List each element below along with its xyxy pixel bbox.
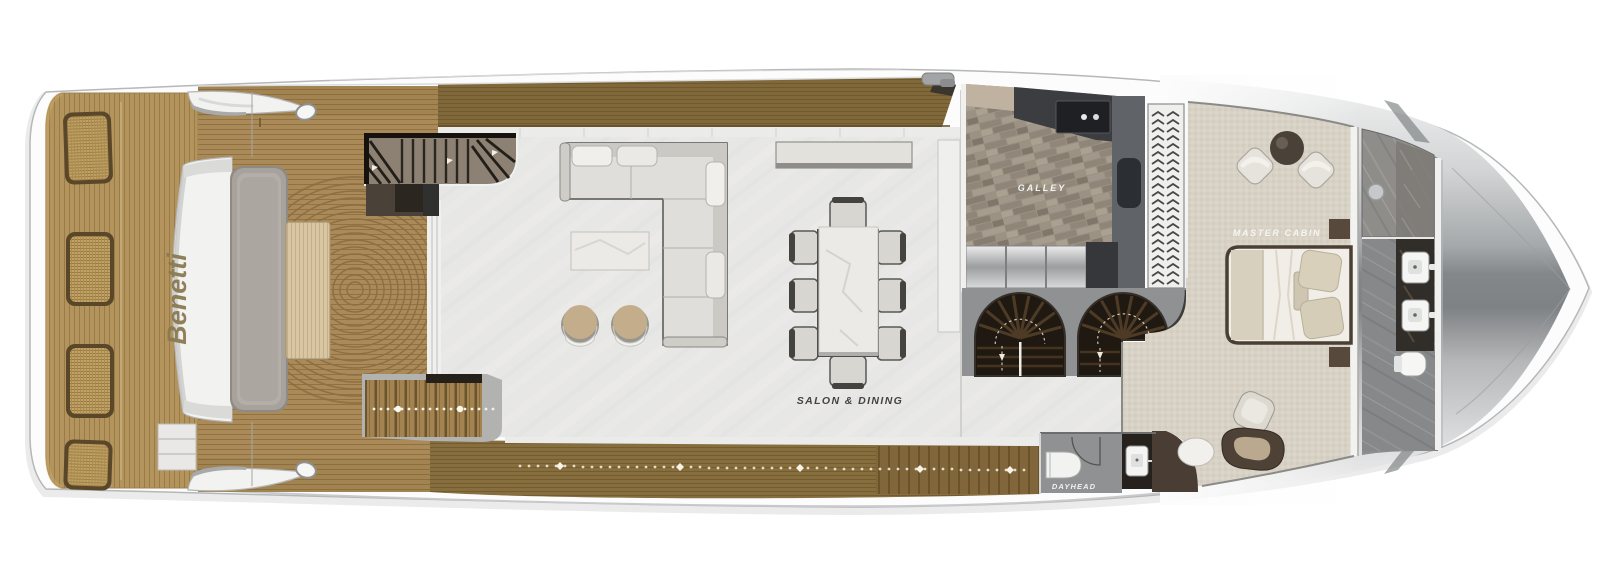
svg-text:Benetti: Benetti bbox=[162, 253, 192, 345]
svg-text:GALLEY: GALLEY bbox=[1018, 183, 1067, 193]
svg-text:DAYHEAD: DAYHEAD bbox=[1052, 482, 1096, 491]
svg-text:MASTER CABIN: MASTER CABIN bbox=[1233, 228, 1321, 238]
svg-text:SALON & DINING: SALON & DINING bbox=[797, 395, 904, 407]
